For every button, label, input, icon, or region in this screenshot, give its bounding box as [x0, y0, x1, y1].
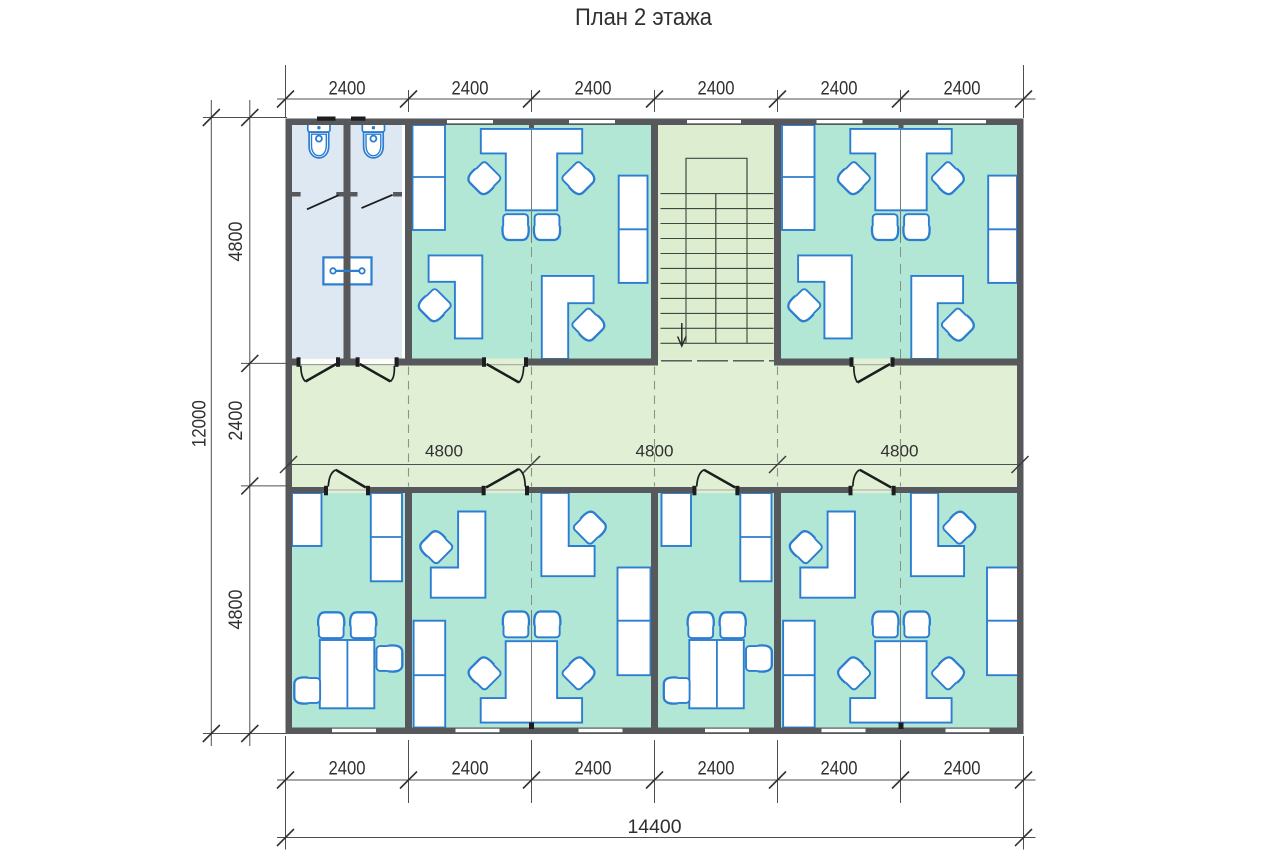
svg-text:2400: 2400 — [452, 759, 489, 780]
svg-text:2400: 2400 — [698, 79, 735, 100]
svg-text:4800: 4800 — [425, 442, 463, 461]
svg-text:2400: 2400 — [698, 759, 735, 780]
svg-text:2400: 2400 — [452, 79, 489, 100]
svg-text:2400: 2400 — [575, 759, 612, 780]
svg-text:2400: 2400 — [226, 401, 247, 441]
svg-text:4800: 4800 — [226, 222, 247, 262]
svg-text:12000: 12000 — [190, 400, 211, 447]
svg-text:14400: 14400 — [628, 817, 682, 838]
svg-text:4800: 4800 — [636, 442, 674, 461]
svg-text:2400: 2400 — [944, 79, 981, 100]
svg-text:2400: 2400 — [944, 759, 981, 780]
svg-text:2400: 2400 — [821, 759, 858, 780]
svg-text:2400: 2400 — [329, 759, 366, 780]
svg-text:План 2 этажа: План 2 этажа — [575, 4, 713, 31]
svg-text:2400: 2400 — [329, 79, 366, 100]
svg-text:2400: 2400 — [575, 79, 612, 100]
svg-text:2400: 2400 — [821, 79, 858, 100]
svg-text:4800: 4800 — [881, 442, 919, 461]
svg-text:4800: 4800 — [226, 590, 247, 630]
